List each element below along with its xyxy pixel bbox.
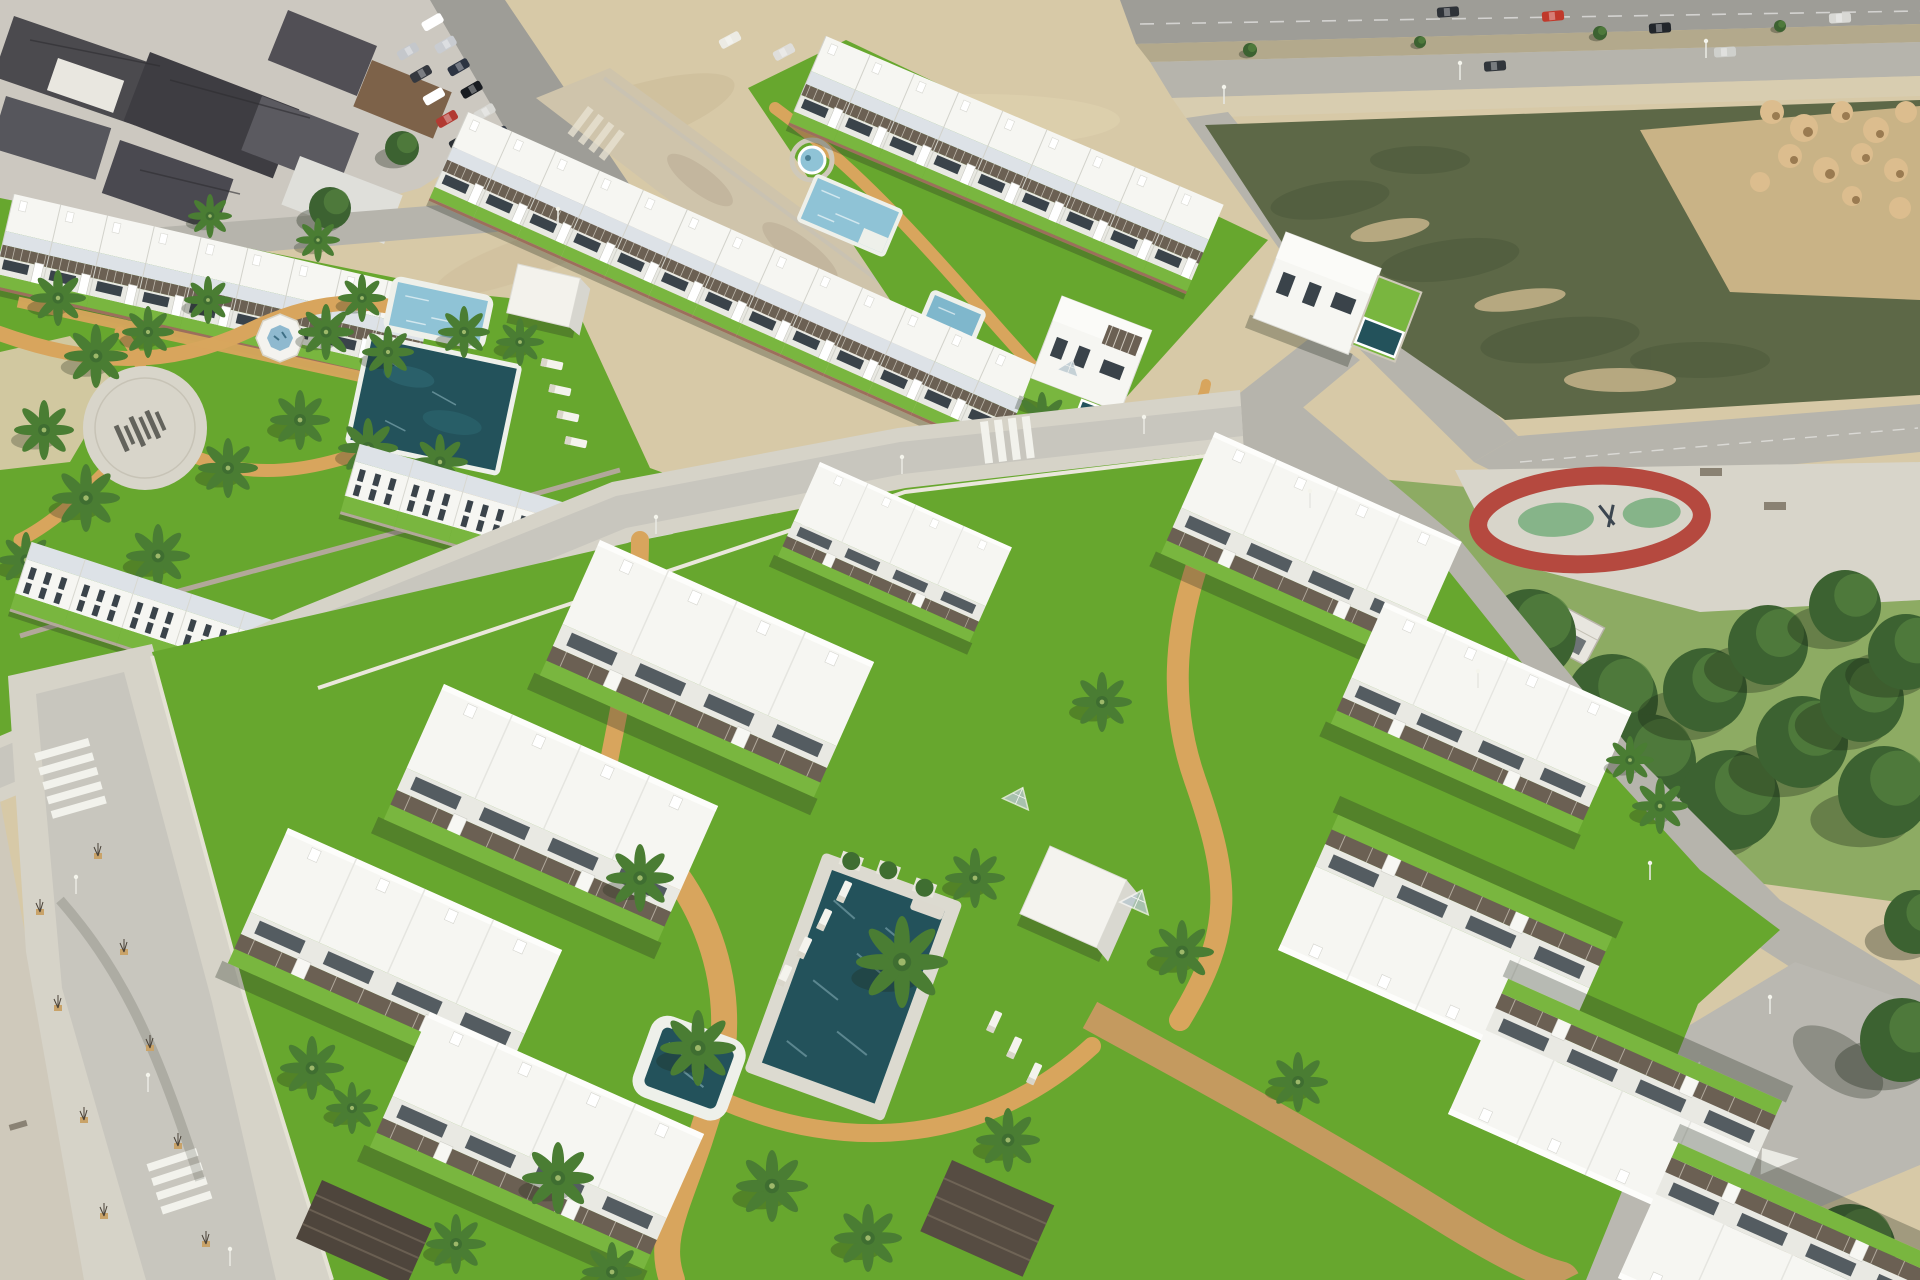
aerial-render: Existing town buildings Access roads (0, 0, 1920, 1280)
park-bench (1764, 502, 1786, 510)
car (1714, 46, 1736, 57)
car (1829, 12, 1851, 23)
logo-plaza: Circular paved plaza with ground logo (83, 366, 207, 490)
fountain-water (805, 155, 811, 161)
car (1484, 60, 1507, 72)
sculpture-fountain (256, 314, 304, 362)
car (1437, 6, 1460, 18)
park-bench (1700, 468, 1722, 476)
round-fountain (799, 147, 825, 173)
car (1649, 22, 1672, 34)
red-car (1542, 10, 1565, 22)
aerial-render-page: { "meta": { "description": "Aerial 3D ar… (0, 0, 1920, 1280)
